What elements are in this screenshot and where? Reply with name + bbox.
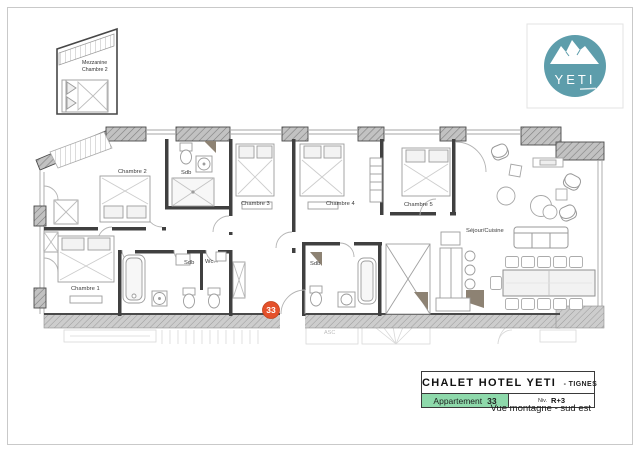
kitchen-furniture [436,232,475,311]
wardrobe-chambre2 [54,200,78,224]
room-label-sdb-top: Sdb [181,170,191,176]
bath1-fixtures [123,255,167,306]
mezzanine-inset: Mezzanine Chambre 2 [57,29,117,114]
inset-label-line1: Mezzanine [82,60,107,66]
mezzanine-stairs-icon [50,132,112,168]
unit-number: 33 [266,305,276,315]
inset-label-line2: Chambre 2 [82,67,108,73]
bar-stool [465,279,475,289]
wardrobe-chambre1 [44,232,58,252]
apartment-label: Appartement [433,396,482,406]
armchair [490,143,510,162]
room-label-chambre2: Chambre 2 [118,169,147,175]
closet-chambre4 [370,158,382,202]
project-title: CHALET HOTEL YETI [422,377,556,389]
bed-chambre5 [402,148,450,196]
bed-chambre4 [300,144,344,209]
unit-number-badge: 33 [263,302,280,319]
room-label-chambre4: Chambre 4 [326,201,355,207]
drawing-sheet: Mezzanine Chambre 2 YETI [0,0,640,452]
living-room-furniture [490,143,595,310]
wall-wedge [204,141,216,153]
entrance-opening [280,311,305,329]
bed-chambre1 [58,236,114,303]
room-label-chambre1: Chambre 1 [71,286,100,292]
bar-stool [465,265,475,275]
sdb-top-fixtures [172,141,216,206]
dining-table [503,270,595,296]
bottom-wall-band [44,306,604,329]
coffee-tables [497,164,567,219]
room-label-chambre3: Chambre 3 [241,201,270,207]
sofa [514,227,568,248]
tv-console [533,158,563,167]
elevator-label: ASC [324,330,335,336]
room-label-wc: Wc. [205,259,215,265]
project-location: - TIGNES [564,381,598,388]
armchair [558,203,578,222]
bed-chambre2 [100,176,150,222]
inset-bed-symbol [62,80,108,112]
room-label-sejour: Séjour/Cuisine [466,228,504,234]
bed-chambre3 [236,144,274,209]
title-row: CHALET HOTEL YETI - TIGNES [422,372,594,394]
logo-text: YETI [555,72,596,87]
windows-right [598,160,602,306]
hall-cupboard [233,262,245,298]
view-caption: Vue montagne - sud est [490,403,591,414]
room-label-sdb-mid: Sdb [184,260,194,266]
yeti-logo: YETI [527,24,623,108]
room-label-chambre5: Chambre 5 [404,202,433,208]
bar-stool [465,251,475,261]
room-label-sdb-right: Sdb [310,261,320,267]
